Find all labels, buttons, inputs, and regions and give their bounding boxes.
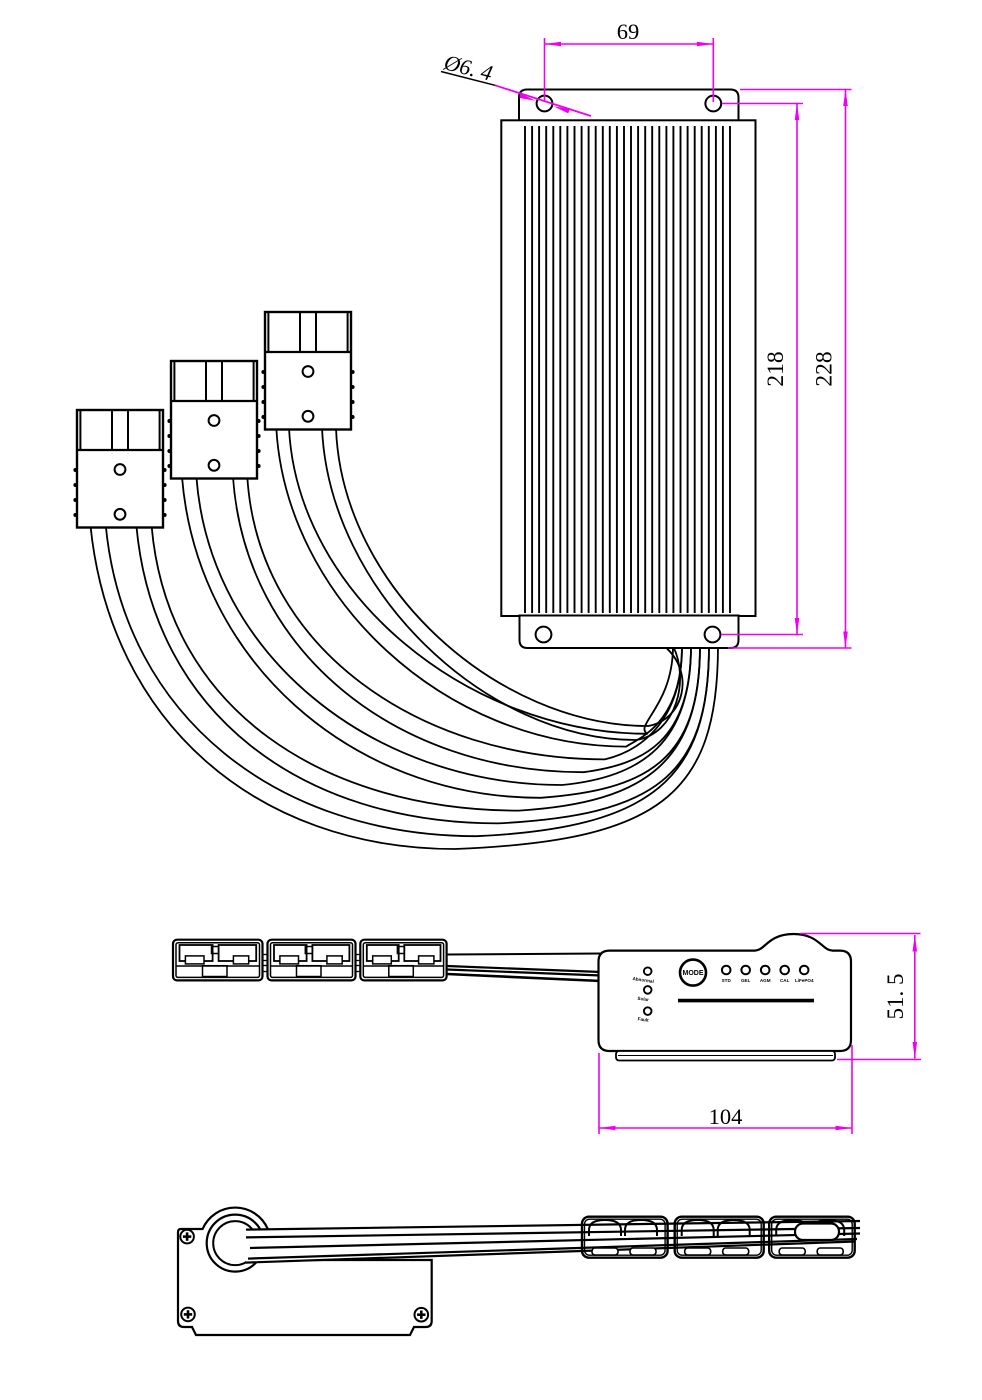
svg-text:MODE: MODE [683,970,704,977]
svg-text:218: 218 [763,351,789,386]
svg-text:AGM: AGM [760,978,771,983]
svg-text:LiFePO4: LiFePO4 [795,978,814,983]
svg-text:69: 69 [617,19,640,44]
svg-text:104: 104 [709,1104,743,1129]
svg-text:GEL: GEL [741,978,751,983]
svg-text:228: 228 [812,351,838,386]
svg-text:STD: STD [722,978,732,983]
svg-text:51. 5: 51. 5 [883,974,908,1020]
svg-text:CAL: CAL [780,978,790,983]
